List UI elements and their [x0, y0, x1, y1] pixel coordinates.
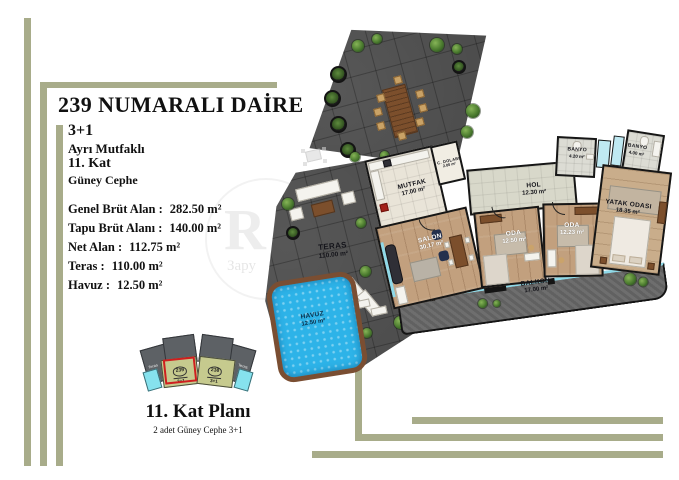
desk-chair — [558, 257, 564, 263]
bush — [282, 198, 294, 210]
label-banyo-1: BANYO 4.20 m² — [567, 146, 587, 159]
desk — [524, 252, 541, 262]
bush — [461, 126, 473, 138]
label-hol: HOL 12.30 m² — [521, 181, 546, 199]
bath-counter — [652, 141, 662, 158]
unit-facade: Güney Cephe — [68, 173, 138, 188]
bed — [483, 253, 510, 285]
plant-pot — [330, 116, 347, 133]
plant-pot — [452, 60, 466, 74]
watermark-letter: R — [224, 196, 266, 263]
bottom-right-bar-l — [355, 434, 663, 441]
page-title: 239 NUMARALI DAİRE — [58, 92, 304, 118]
area-label: Tapu Brüt Alanı : — [68, 221, 162, 235]
area-row-havuz: Havuz :12.50 m² — [68, 278, 221, 293]
common-area-chair — [303, 162, 307, 166]
unit-floor: 11. Kat — [68, 156, 111, 172]
area-list: Genel Brüt Alan :282.50 m² Tapu Brüt Ala… — [68, 202, 221, 297]
bed-pillow — [629, 256, 643, 265]
stove — [379, 203, 389, 213]
area-value: 112.75 m² — [129, 240, 180, 254]
room-area: 12.30 m² — [522, 189, 547, 198]
watermark-text: Зару — [227, 258, 256, 275]
area-row-genel-brut: Genel Brüt Alan :282.50 m² — [68, 202, 221, 217]
bottom-right-bar-upper — [412, 417, 663, 424]
bush — [430, 38, 444, 52]
unit-type: 3+1 — [68, 122, 93, 140]
area-row-tapu-brut: Tapu Brüt Alanı :140.00 m² — [68, 221, 221, 236]
chaise-sofa — [395, 285, 409, 305]
left-bar-inner — [56, 125, 63, 466]
salon-chair — [464, 237, 470, 244]
area-value: 110.00 m² — [112, 259, 163, 273]
keyplan-unit-238-label: 238 3+1 — [207, 358, 224, 384]
label-teras: TERAS 110.00 m² — [317, 240, 348, 262]
left-bar-outer — [24, 18, 31, 466]
bush — [478, 298, 488, 308]
sink — [586, 154, 594, 160]
nightstand — [599, 257, 607, 265]
room-area: 4.20 m² — [567, 153, 587, 160]
bush — [623, 273, 637, 287]
unit-number: 238 — [207, 366, 222, 377]
bush — [372, 34, 382, 44]
wardrobe — [574, 207, 598, 215]
plant-pot — [286, 226, 300, 240]
nightstand — [647, 262, 655, 270]
bush — [493, 300, 501, 308]
salon-chair — [468, 254, 474, 261]
plan-subtitle: 2 adet Güney Cephe 3+1 — [116, 425, 280, 435]
area-value: 12.50 m² — [117, 278, 162, 292]
area-value: 140.00 m² — [169, 221, 221, 235]
bush — [360, 266, 371, 277]
bed-pillow — [612, 254, 626, 263]
common-area-chair — [322, 147, 326, 151]
label-oda-1: ODA 12.50 m² — [501, 229, 527, 248]
room-area: 12.23 m² — [560, 230, 584, 238]
label-oda-2: ODA 12.23 m² — [560, 222, 584, 239]
area-label: Teras : — [68, 259, 105, 273]
desk-chair — [528, 244, 535, 251]
bush — [352, 40, 364, 52]
bottom-bar-lower — [312, 451, 663, 458]
area-label: Genel Brüt Alan : — [68, 202, 163, 216]
bush — [638, 277, 648, 287]
common-area-table — [305, 148, 322, 162]
keyplan-highlight-239 — [163, 356, 197, 384]
unit-kitchen: Ayrı Mutfaklı — [68, 141, 145, 157]
dresser — [657, 201, 668, 224]
area-row-teras: Teras :110.00 m² — [68, 259, 221, 274]
area-label: Havuz : — [68, 278, 110, 292]
room-oda-1 — [473, 206, 547, 288]
salon-rug — [410, 256, 442, 282]
bush — [356, 218, 366, 228]
left-bar-middle — [40, 82, 47, 466]
key-plan: 239 3+1 238 3+1 Teras Teras — [140, 336, 256, 396]
plant-pot — [324, 90, 341, 107]
area-label: Net Alan : — [68, 240, 122, 254]
bush — [466, 104, 480, 118]
kitchen-counter — [370, 170, 386, 201]
area-row-net-alan: Net Alan :112.75 m² — [68, 240, 221, 255]
salon-chair — [444, 241, 450, 248]
bush — [350, 152, 360, 162]
salon-chair — [448, 259, 454, 266]
bush — [452, 44, 462, 54]
desk — [547, 249, 556, 267]
room-yatak-odasi — [590, 164, 672, 276]
top-bar — [40, 82, 277, 88]
common-area-chair — [323, 159, 327, 163]
area-value: 282.50 m² — [170, 202, 222, 216]
floor-plan-page: R Зару 239 NUMARALI DAİRE 3+1 Ayrı Mutfa… — [0, 0, 679, 480]
plan-title: 11. Kat Planı — [116, 401, 280, 423]
common-area-chair — [301, 149, 305, 153]
plant-pot — [330, 66, 347, 83]
